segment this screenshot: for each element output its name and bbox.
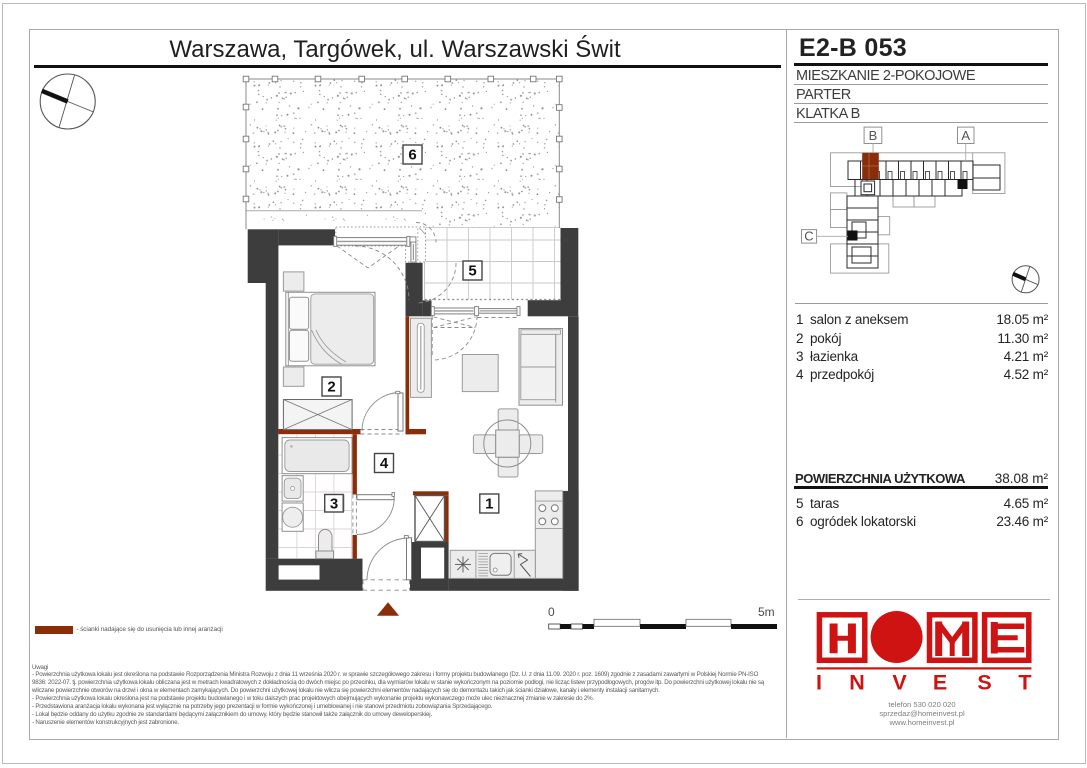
svg-text:I: I bbox=[816, 671, 822, 695]
svg-text:A: A bbox=[961, 128, 970, 143]
svg-text:5: 5 bbox=[468, 263, 476, 280]
svg-text:6: 6 bbox=[408, 147, 416, 164]
svg-text:T: T bbox=[1018, 671, 1031, 695]
svg-text:N: N bbox=[849, 671, 865, 695]
svg-text:S: S bbox=[977, 671, 991, 695]
svg-text:3: 3 bbox=[330, 495, 338, 512]
svg-text:4: 4 bbox=[380, 455, 389, 472]
svg-text:E: E bbox=[933, 671, 947, 695]
svg-text:C: C bbox=[804, 228, 813, 243]
svg-text:B: B bbox=[869, 128, 878, 143]
svg-text:2: 2 bbox=[327, 379, 335, 396]
svg-text:V: V bbox=[892, 671, 907, 695]
svg-text:1: 1 bbox=[485, 496, 493, 513]
